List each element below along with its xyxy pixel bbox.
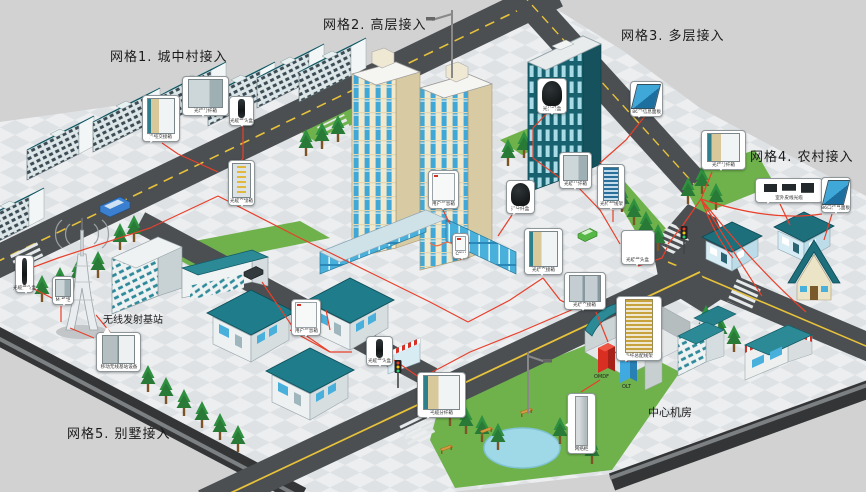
callout-label: 室外皮线光缆 [775,196,803,201]
grid1-label: 网格1. 城中村接入 [110,46,228,65]
callout-label: 光缆分纤箱 [194,109,217,114]
closure-icon [627,245,650,257]
grid3-label: 网格3. 多层接入 [621,25,725,44]
callout-cross-cabinet: 光缆交接箱 [142,95,180,142]
callout-odf: 光纤配线架 [597,164,625,209]
callout-label: 网络柜 [575,447,589,452]
callout-splice-closure: 光缆接头盒 [366,336,393,366]
closure-icon [376,339,383,358]
callout-splitter-box: 光分纤盒 [506,180,535,214]
closure-icon [238,99,244,118]
callout-label: 移动无线基站设备 [100,365,137,370]
callout-distribution-box: 光缆分纤箱 [182,76,229,116]
callout-splice-closure: 光缆接头盒 [15,255,34,293]
callout-info-panel: 86口信息面板 [630,81,663,117]
callout-splice-closure: 光缆接头盒 [229,96,254,126]
callout-network-cabinet: 网络柜 [567,393,596,454]
callout-label: 光缆接头盒 [230,119,253,124]
callout-label: ONU [455,252,465,257]
callout-label: 光缆交接箱 [230,199,253,204]
splitter-icon [542,81,562,106]
callout-label: 用户信息箱 [295,329,318,334]
callout-user-info-box: 用户信息箱 [291,299,321,336]
callout-label: 光缆分纤箱 [712,163,735,168]
cabinet-open-icon [529,231,558,267]
cabinet-icon [232,163,251,198]
onu-icon [455,236,466,251]
callout-bts-equipment: 移动无线基站设备 [96,332,141,372]
base-station-label: 无线发射基站 [103,311,163,326]
closure-icon [22,258,26,285]
callout-cross-cabinet: 光缆交接箱 [524,228,563,275]
callout-distribution-box: 光缆分纤箱 [701,130,746,170]
callout-label: 86口信息面板 [822,206,851,211]
cabinet-icon [569,275,601,302]
info-box-icon [432,173,455,201]
omdf-label: OMDF [594,374,609,380]
panel-icon [822,180,850,205]
callout-splitter-box: 光分纤盒 [537,78,567,114]
callout-cabinet: M-机柜 [52,276,74,305]
splitter-icon [511,183,530,206]
city-illustration [0,0,866,492]
callout-main-odf: 光纤总配线架 [616,296,662,361]
callout-label: 用户信息箱 [432,202,455,207]
callout-label: 光缆接头盒 [626,258,649,263]
callout-label: 光缆接头盒 [13,286,36,291]
cabinet-icon [563,155,587,181]
callout-label: 86口信息面板 [632,110,661,115]
callout-label: 光缆交接箱 [532,268,555,273]
cabinet-open-icon [147,98,175,134]
callout-label: 光纤总配线架 [625,354,653,359]
cabinet-open-icon [423,375,460,410]
cabinet-icon [188,79,224,108]
grid5-label: 网格5. 别墅接入 [67,423,171,442]
callout-label: 光缆分纤箱 [430,411,453,416]
cabinet-open-icon [707,133,741,162]
grid4-label: 网格4. 农村接入 [750,146,854,165]
callout-label: 光分纤盒 [543,107,561,112]
network-diagram-scene: 网格1. 城中村接入 网格2. 高层接入 网格3. 多层接入 网格4. 农村接入… [0,0,866,492]
central-office-label: 中心机房 [648,404,692,420]
callout-drop-cable: 室外皮线光缆 [755,178,823,203]
callout-label: 光缆交接箱 [149,135,172,140]
callout-onu: ONU [452,233,469,259]
callout-info-panel: 86口信息面板 [821,177,851,213]
bts-equipment-icon [102,335,136,364]
odf-rack-icon [603,167,618,201]
olt-label: OLT [622,384,631,390]
callout-distribution-box: 光缆分纤箱 [559,152,592,189]
callout-label: 光纤配线架 [600,202,623,207]
cabinet-icon [55,279,70,297]
callout-cross-cabinet: 光缆交接箱 [228,160,255,206]
cabinet-icon [575,396,587,446]
callout-label: 光缆分纤箱 [564,182,587,187]
callout-label: 光缆交接箱 [573,303,596,308]
callout-label: M-机柜 [56,298,71,303]
drop-cable-icon [764,181,815,195]
callout-label: 光分纤盒 [511,207,529,212]
panel-icon [631,84,661,109]
info-box-icon [295,302,317,328]
callout-distribution-box: 光缆分纤箱 [417,372,466,418]
callout-user-info-box: 用户信息箱 [428,170,459,209]
callout-splice-closure: 光缆接头盒 [621,230,655,265]
callout-label: 光缆接头盒 [368,359,391,364]
callout-cross-cabinet: 光缆交接箱 [564,272,606,310]
grid2-label: 网格2. 高层接入 [323,14,427,33]
odf-rack-icon [625,299,653,353]
